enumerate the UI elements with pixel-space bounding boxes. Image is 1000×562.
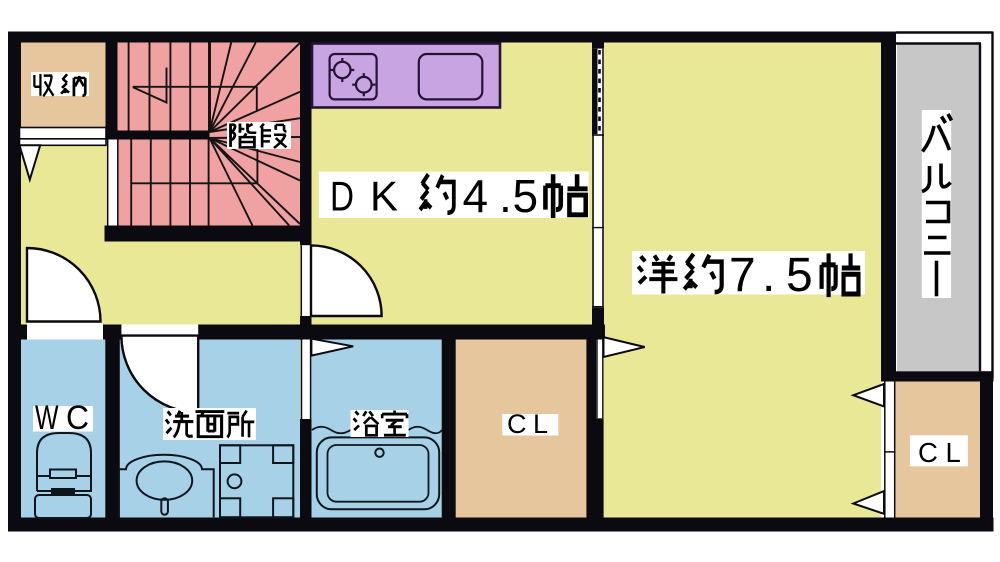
svg-text:5: 5 [786,249,813,302]
svg-text:7: 7 [729,249,756,302]
svg-text:L: L [946,437,961,468]
svg-text:D: D [330,173,354,220]
svg-text:5: 5 [513,170,539,222]
svg-text:W: W [35,399,59,437]
svg-text:C: C [66,399,89,437]
svg-text:K: K [370,173,398,220]
svg-text:C: C [918,437,938,468]
svg-text:L: L [533,409,548,439]
svg-text:4: 4 [463,170,489,222]
svg-text:.: . [499,170,512,222]
svg-text:C: C [507,409,527,439]
svg-text:.: . [762,249,775,302]
